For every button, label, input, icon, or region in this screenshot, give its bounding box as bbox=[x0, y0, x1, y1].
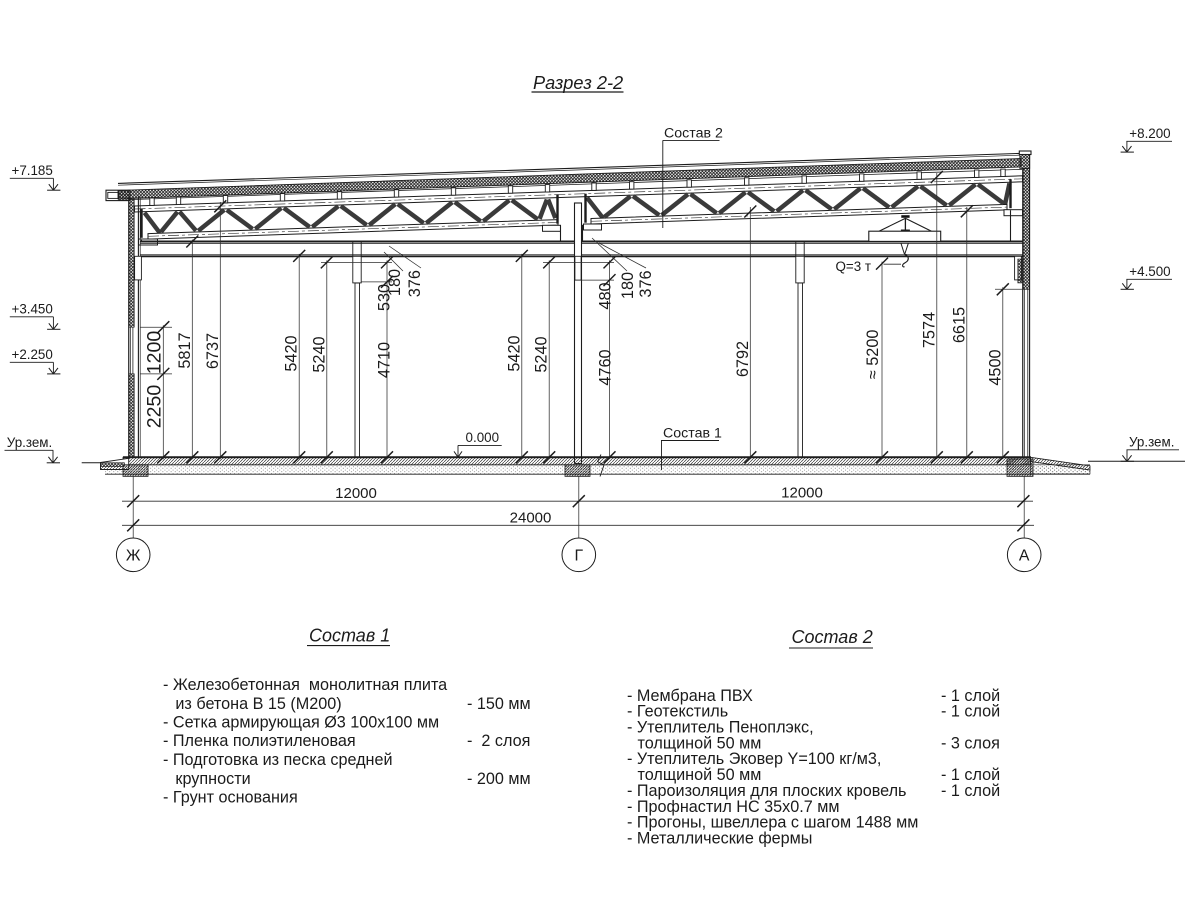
svg-text:180: 180 bbox=[386, 269, 404, 296]
svg-text:376: 376 bbox=[637, 270, 655, 297]
svg-text:А: А bbox=[1019, 547, 1030, 564]
svg-text:4500: 4500 bbox=[986, 349, 1004, 385]
svg-text:376: 376 bbox=[406, 270, 424, 297]
svg-text:12000: 12000 bbox=[335, 485, 377, 502]
svg-text:+7.185: +7.185 bbox=[12, 163, 53, 178]
svg-text:Состав 2: Состав 2 bbox=[664, 126, 723, 142]
svg-text:- 1 слой: - 1 слой bbox=[941, 703, 1000, 721]
svg-text:Разрез 2-2: Разрез 2-2 bbox=[533, 73, 623, 93]
svg-text:Г: Г bbox=[575, 547, 584, 564]
svg-text:5240: 5240 bbox=[310, 336, 328, 372]
svg-text:≈ 5200: ≈ 5200 bbox=[864, 330, 882, 380]
svg-text:Q=3 т: Q=3 т bbox=[836, 259, 872, 274]
svg-text:Ж: Ж bbox=[126, 547, 141, 564]
svg-text:- 150 мм: - 150 мм bbox=[467, 695, 531, 713]
svg-text:Ур.зем.: Ур.зем. bbox=[7, 435, 52, 450]
svg-text:180: 180 bbox=[619, 272, 637, 299]
svg-text:0.000: 0.000 bbox=[466, 430, 500, 445]
svg-text:4760: 4760 bbox=[597, 349, 615, 385]
svg-text:- 1 слой: - 1 слой bbox=[941, 782, 1000, 800]
svg-text:Состав 1: Состав 1 bbox=[309, 626, 390, 646]
svg-text:5420: 5420 bbox=[283, 335, 301, 371]
svg-text:- 200 мм: - 200 мм bbox=[467, 770, 531, 788]
svg-text:6737: 6737 bbox=[204, 333, 222, 369]
svg-text:Состав 2: Состав 2 bbox=[792, 627, 873, 647]
svg-text:крупности: крупности bbox=[175, 770, 250, 788]
svg-text:- Сетка армирующая Ø3 100x100: - Сетка армирующая Ø3 100x100 мм bbox=[163, 714, 439, 732]
svg-text:6792: 6792 bbox=[734, 341, 752, 377]
svg-text:480: 480 bbox=[597, 282, 615, 309]
svg-text:6615: 6615 bbox=[950, 307, 968, 343]
svg-text:- Железобетонная монолитная п: - Железобетонная монолитная плита bbox=[163, 676, 447, 694]
svg-text:- Подготовка из песка средней: - Подготовка из песка средней bbox=[163, 751, 393, 769]
svg-text:4710: 4710 bbox=[376, 342, 394, 378]
svg-text:+4.500: +4.500 bbox=[1129, 264, 1170, 279]
svg-text:- 2 слоя: - 2 слоя bbox=[467, 732, 530, 750]
svg-text:+3.450: +3.450 bbox=[12, 302, 53, 317]
svg-text:24000: 24000 bbox=[510, 509, 552, 526]
svg-text:- Грунт основания: - Грунт основания bbox=[163, 789, 298, 807]
svg-text:5817: 5817 bbox=[176, 332, 194, 368]
svg-text:из бетона В 15 (М200): из бетона В 15 (М200) bbox=[175, 695, 341, 713]
svg-text:1200: 1200 bbox=[143, 331, 165, 375]
svg-text:5420: 5420 bbox=[505, 335, 523, 371]
svg-text:Состав 1: Состав 1 bbox=[663, 426, 722, 442]
svg-text:7574: 7574 bbox=[920, 312, 938, 348]
svg-text:+8.200: +8.200 bbox=[1129, 126, 1170, 141]
svg-text:12000: 12000 bbox=[781, 485, 823, 502]
svg-text:- 3 слоя: - 3 слоя bbox=[941, 734, 1000, 752]
svg-text:- Пленка полиэтиленовая: - Пленка полиэтиленовая bbox=[163, 732, 356, 750]
svg-text:- Металлические фермы: - Металлические фермы bbox=[627, 829, 812, 847]
svg-text:2250: 2250 bbox=[143, 385, 165, 429]
svg-text:5240: 5240 bbox=[533, 336, 551, 372]
svg-text:Ур.зем.: Ур.зем. bbox=[1129, 435, 1174, 450]
svg-text:+2.250: +2.250 bbox=[12, 347, 53, 362]
